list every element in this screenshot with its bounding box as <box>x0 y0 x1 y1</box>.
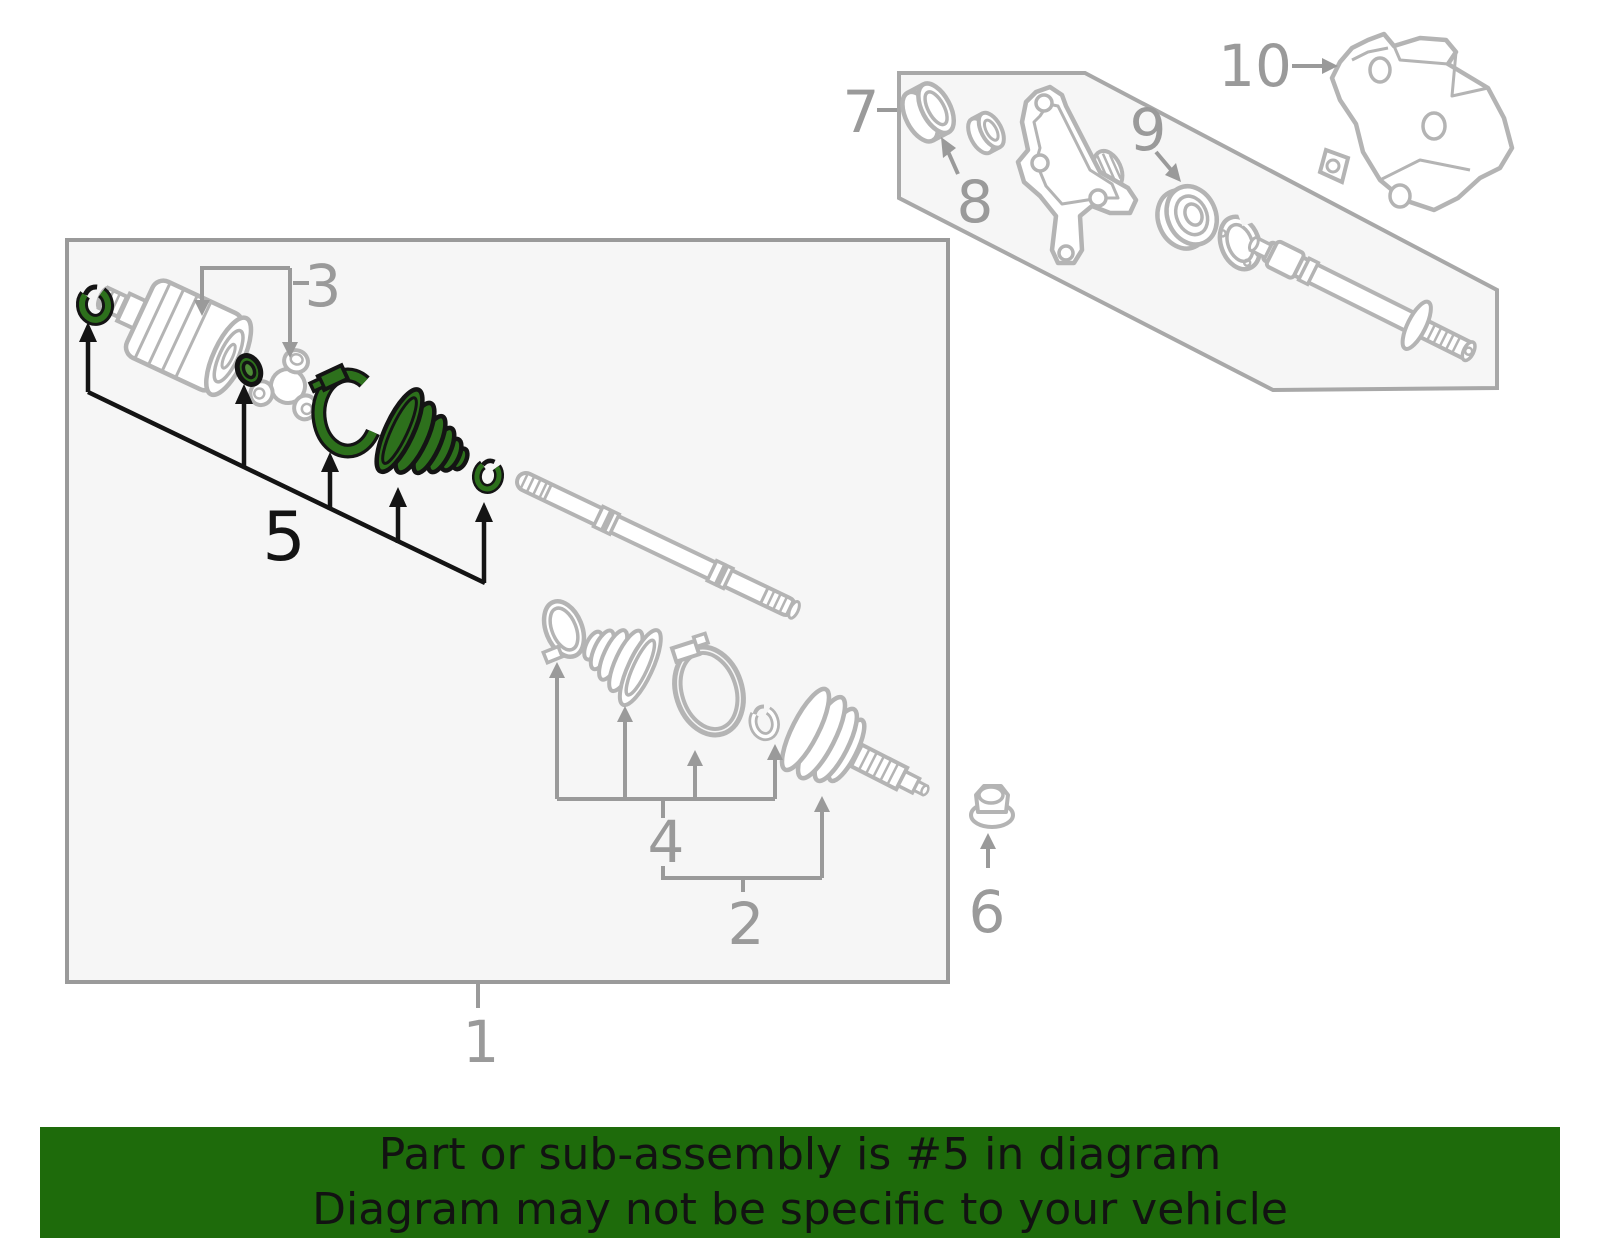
callout-9-label: 9 <box>1130 96 1167 164</box>
spindle-nut-drawing <box>971 786 1013 827</box>
diagram-page: 7 8 9 10 <box>0 0 1600 1249</box>
callout-2-label: 2 <box>728 890 765 958</box>
heat-shield-drawing <box>1320 34 1512 210</box>
callout-1: 1 <box>463 983 500 1076</box>
callout-5-label: 5 <box>262 498 305 577</box>
banner-line-1: Part or sub-assembly is #5 in diagram <box>379 1128 1221 1183</box>
callout-10: 10 <box>1218 32 1338 100</box>
callout-7-label: 7 <box>843 78 880 146</box>
parts-diagram: 7 8 9 10 <box>0 0 1600 1249</box>
banner-line-2: Diagram may not be specific to your vehi… <box>312 1183 1288 1238</box>
callout-6: 6 <box>969 833 1006 946</box>
callout-1-label: 1 <box>463 1008 500 1076</box>
callout-10-label: 10 <box>1218 32 1292 100</box>
callout-7: 7 <box>843 78 897 146</box>
callout-4-label: 4 <box>648 808 685 876</box>
callout-3-label: 3 <box>305 252 342 320</box>
highlight-banner: Part or sub-assembly is #5 in diagram Di… <box>40 1127 1560 1238</box>
callout-8-label: 8 <box>957 168 994 236</box>
callout-6-label: 6 <box>969 878 1006 946</box>
